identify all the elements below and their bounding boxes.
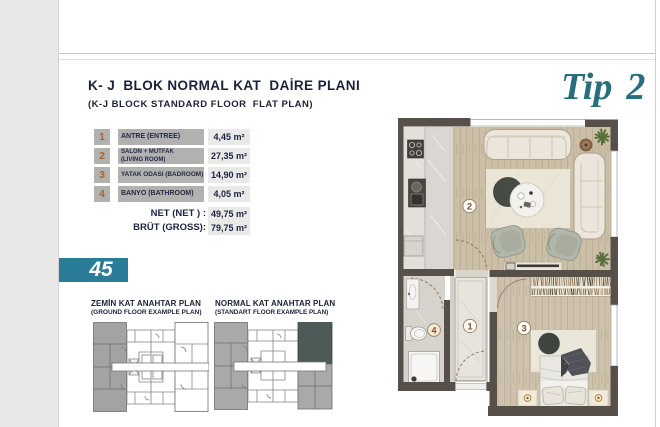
svg-text:2: 2 — [467, 202, 472, 213]
svg-text:4: 4 — [431, 326, 436, 336]
svg-text:1: 1 — [467, 322, 473, 333]
svg-text:3: 3 — [521, 324, 526, 335]
